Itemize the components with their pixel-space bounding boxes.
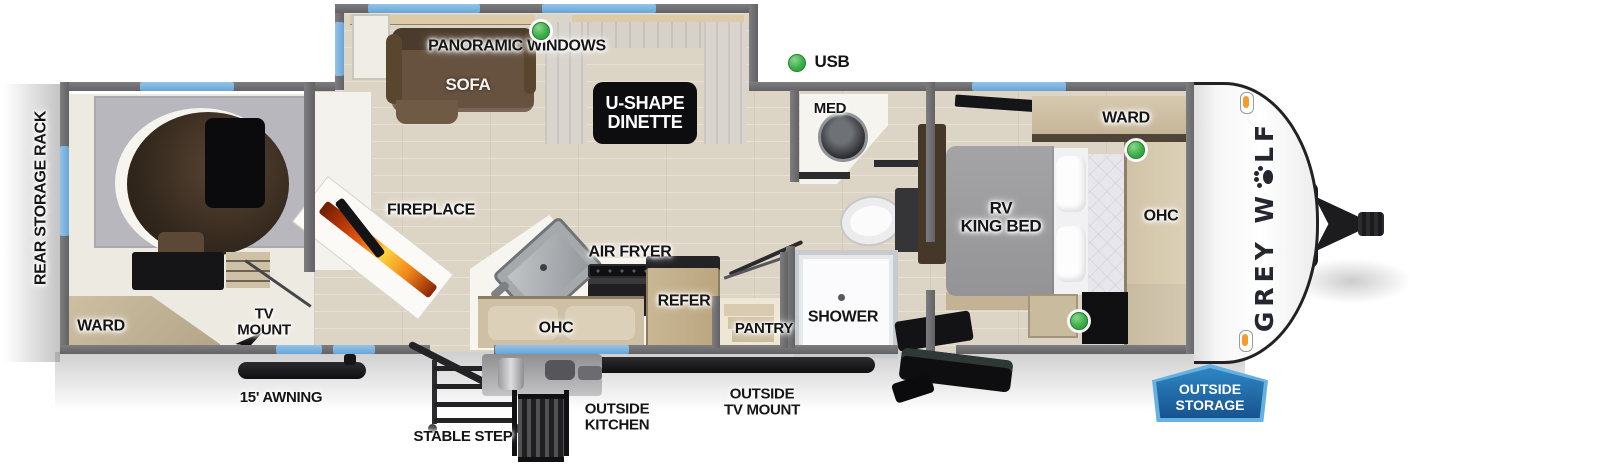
awning-label: 15' AWNING: [240, 390, 323, 406]
grill: [518, 394, 564, 462]
wall-bath-right-lower: [926, 290, 935, 354]
outside-tv-mount-label: OUTSIDE TV MOUNT: [724, 386, 800, 417]
outside-kitchen-knob: [578, 366, 602, 380]
dinette-label-line2: DINETTE: [608, 113, 683, 132]
rear-dresser: [132, 252, 224, 290]
window-bottom-3: [495, 345, 629, 354]
outside-storage-line2: STORAGE: [1176, 398, 1245, 413]
rv-king-bed-label: RV KING BED: [961, 199, 1042, 234]
bath-sink: [818, 112, 868, 162]
wolf-paw-icon: [1253, 166, 1275, 188]
tv-mount-label: TV MOUNT: [237, 306, 291, 337]
wall-pantry-left: [712, 296, 720, 348]
usb-dot-bedroom-nightstand: [1070, 312, 1088, 330]
sofa-armrest-left: [386, 34, 402, 104]
sofa-chaise: [396, 100, 458, 124]
wall-divider-rear: [304, 82, 315, 272]
fireplace-label: FIREPLACE: [387, 203, 475, 220]
refer-label: REFER: [658, 294, 711, 311]
window-bottom-2: [333, 345, 375, 354]
grill-post-right: [564, 390, 569, 456]
ohc-bedroom-label: OHC: [1144, 209, 1179, 226]
step-rung-4: [434, 418, 514, 423]
wall-slideout-right: [749, 4, 758, 90]
panoramic-windows-label: PANORAMIC WINDOWS: [428, 39, 606, 56]
bath-ohc-strip-1: [798, 172, 850, 179]
bedroom-ohc-cabinet: [1124, 142, 1190, 354]
pantry-shelf-1: [724, 304, 774, 316]
dinette-table: U-SHAPE DINETTE: [593, 82, 697, 144]
dinette-label-line1: U-SHAPE: [606, 94, 685, 113]
grill-post-left: [512, 390, 517, 456]
range-burners: [592, 267, 650, 275]
med-label: MED: [814, 101, 846, 117]
window-bottom-1: [276, 345, 322, 354]
ward-rear-label: WARD: [77, 319, 125, 336]
usb-dot-legend: [788, 54, 806, 72]
bed-pillow-1: [1056, 156, 1086, 212]
wall-bath-right-upper: [926, 82, 935, 242]
slideout-corner-cabinet: [352, 14, 390, 80]
usb-legend-label: USB: [815, 53, 850, 71]
rear-side-cabinet: [226, 252, 270, 288]
air-fryer-label: AIR FRYER: [589, 245, 672, 262]
outside-kitchen-burner: [545, 360, 575, 380]
window-rear-left: [60, 146, 69, 236]
ohc-kitchen-label: OHC: [539, 321, 574, 338]
grey-wolf-logo: GREY W LF: [1246, 108, 1282, 344]
logo-text-prefix: GREY W: [1250, 191, 1279, 332]
awning-roller-bracket: [344, 354, 356, 365]
outside-storage-line1: OUTSIDE: [1179, 382, 1241, 397]
sofa-label: SOFA: [445, 76, 490, 94]
kitchen-sink-drain: [540, 264, 547, 271]
wall-bath-left-upper: [790, 90, 799, 182]
logo-text-suffix: LF: [1250, 120, 1279, 163]
wall-bottom-c: [956, 345, 1196, 354]
step-rung-3: [434, 402, 514, 407]
shower-label: SHOWER: [808, 310, 878, 327]
window-slideout-top-1: [368, 4, 480, 13]
window-slideout-left: [335, 22, 344, 76]
dinette-bench-right: [704, 22, 746, 144]
shower-drain: [838, 294, 845, 301]
marker-light-top-lens: [1243, 96, 1249, 108]
stable-step-label: STABLE STEP: [414, 429, 513, 445]
hitch-a-frame: [1314, 196, 1362, 252]
ward-bedroom-label: WARD: [1102, 111, 1150, 128]
pantry-label: PANTRY: [735, 321, 793, 337]
window-bedroom-top: [972, 82, 1066, 91]
kitchen-ohc-door-right: [565, 306, 635, 340]
floorplan-diagram: U-SHAPE DINETTE: [0, 0, 1600, 475]
outside-kitchen-label: OUTSIDE KITCHEN: [585, 401, 650, 432]
window-slideout-top-2: [542, 4, 656, 13]
rear-tv: [205, 118, 265, 208]
rear-storage-rack-label: REAR STORAGE RACK: [34, 111, 51, 285]
window-rear-top: [140, 82, 234, 91]
bedroom-black-cabinet: [1082, 292, 1128, 344]
hitch-coupler: [1358, 212, 1384, 236]
shower-pan: [794, 250, 898, 358]
usb-dot-bedroom-ward: [1127, 141, 1145, 159]
usb-dot-panoramic: [532, 22, 550, 40]
bed-pillow-2: [1056, 226, 1086, 282]
outside-kitchen-cylinder: [498, 358, 524, 390]
bed-quilt: [1088, 154, 1126, 292]
bath-ohc-strip-2: [874, 160, 918, 167]
